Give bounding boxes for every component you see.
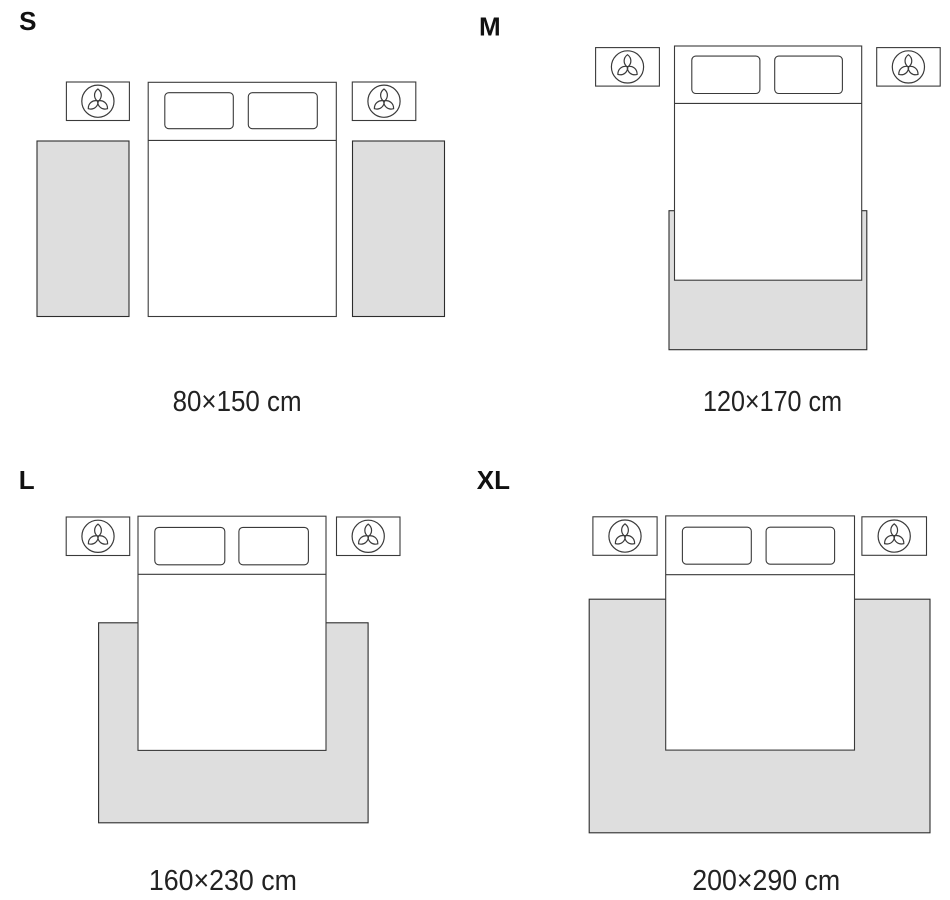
svg-text:200×290 cm: 200×290 cm	[692, 865, 840, 897]
svg-text:M: M	[479, 12, 501, 42]
svg-text:XL: XL	[477, 465, 510, 495]
svg-text:80×150 cm: 80×150 cm	[173, 386, 302, 418]
svg-text:160×230 cm: 160×230 cm	[149, 865, 297, 897]
svg-text:S: S	[19, 6, 36, 36]
svg-text:120×170 cm: 120×170 cm	[703, 386, 842, 418]
svg-text:L: L	[19, 465, 35, 495]
